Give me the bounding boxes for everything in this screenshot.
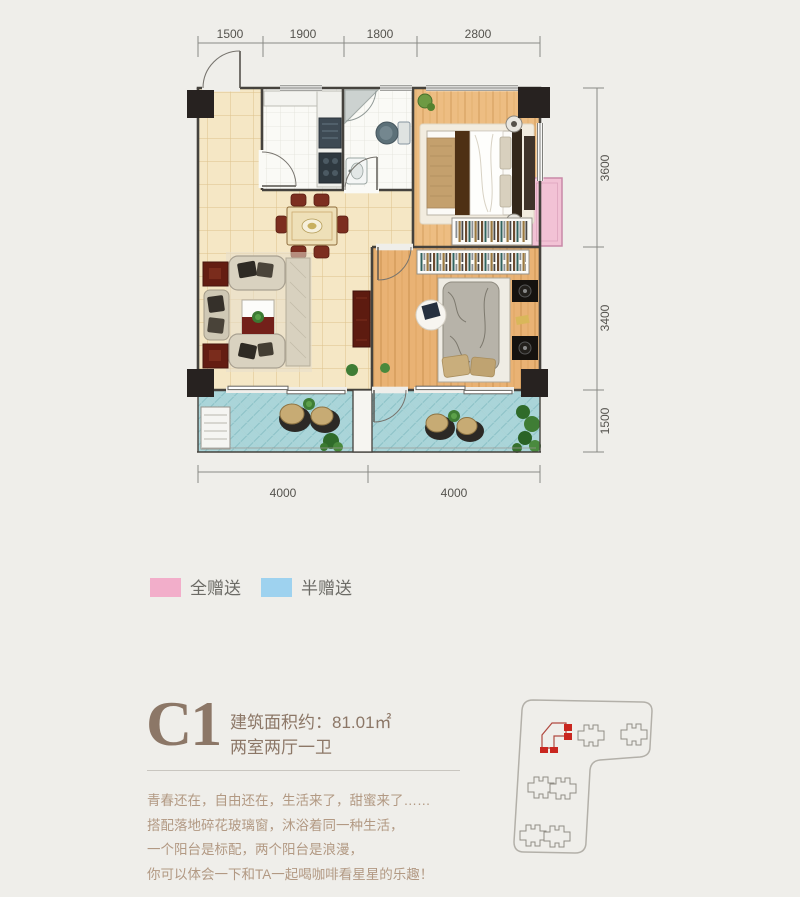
legend-swatch-full-gift: [150, 578, 181, 597]
building-outline: [621, 724, 647, 745]
tv-unit: [524, 136, 535, 210]
column: [187, 369, 214, 397]
dim-label: 4000: [441, 486, 468, 500]
building-outline: [578, 725, 604, 746]
desc-line: 一个阳台是标配，两个阳台是浪漫，: [147, 838, 507, 863]
unit-rooms: 两室两厅一卫: [230, 735, 476, 760]
dimension-labels-top: 1500 1900 1800 2800: [217, 27, 492, 41]
dimensions-right: [583, 88, 604, 452]
dimensions-bottom: [198, 465, 540, 483]
legend: 全赠送 半赠送: [150, 578, 352, 598]
window: [537, 123, 544, 181]
site-plan: [495, 690, 685, 870]
site-buildings: [520, 724, 647, 847]
dimension-labels-right: 3600 3400 1500: [598, 154, 612, 434]
highlighted-building: [540, 723, 572, 753]
column: [187, 90, 214, 118]
desc-line: 青春还在，自由还在，生活来了，甜蜜来了……: [147, 789, 507, 814]
legend-label-full-gift: 全赠送: [190, 579, 241, 598]
coffee-table: [242, 300, 274, 334]
unit-area: 建筑面积约：81.01㎡: [230, 710, 476, 735]
dim-label: 4000: [270, 486, 297, 500]
dim-label: 3600: [598, 154, 612, 181]
dim-label: 1900: [290, 27, 317, 41]
page: 1500 1900 1800 2800 3600 3400 1500 4000 …: [0, 0, 800, 897]
dim-label: 1500: [217, 27, 244, 41]
tv-cabinet: [353, 291, 370, 347]
double-bed: [438, 278, 510, 382]
dim-label: 3400: [598, 304, 612, 331]
bookshelf: [452, 218, 532, 245]
dim-label: 1500: [598, 407, 612, 434]
plant: [346, 364, 358, 376]
desc-line: 你可以体会一下和TA一起喝咖啡看星星的乐趣！: [147, 863, 507, 888]
floor-plan: 1500 1900 1800 2800 3600 3400 1500 4000 …: [0, 0, 800, 630]
column: [518, 87, 550, 118]
toilet: [376, 122, 410, 144]
marketing-description: 青春还在，自由还在，生活来了，甜蜜来了…… 搭配落地碎花玻璃窗，沐浴着同一种生活…: [147, 789, 507, 887]
dim-label: 2800: [465, 27, 492, 41]
window: [380, 85, 412, 91]
legend-swatch-half-gift: [261, 578, 292, 597]
sliding-door: [226, 386, 347, 394]
bathroom-sink: [346, 158, 367, 184]
unit-name: C1: [146, 692, 220, 756]
wardrobe: [417, 250, 529, 274]
sofa-set: [203, 252, 312, 372]
desc-line: 搭配落地碎花玻璃窗，沐浴着同一种生活，: [147, 814, 507, 839]
building-outline: [544, 826, 570, 847]
legend-label-half-gift: 半赠送: [301, 579, 352, 598]
bay-window-full-gift: [532, 178, 562, 246]
dim-label: 1800: [367, 27, 394, 41]
entry-door-arc: [203, 51, 240, 88]
double-bed: [427, 129, 522, 217]
dimension-labels-bottom: 4000 4000: [270, 486, 468, 500]
stove: [319, 153, 341, 183]
unit-info: C1 建筑面积约：81.01㎡ 两室两厅一卫: [146, 692, 476, 760]
window: [426, 85, 518, 91]
window: [280, 85, 322, 91]
building-outline: [520, 825, 546, 846]
washing-machine: [201, 407, 230, 449]
column: [521, 369, 548, 397]
plant: [380, 363, 390, 373]
divider: [147, 770, 460, 771]
building-outline: [550, 778, 576, 799]
fridge: [319, 118, 341, 148]
sliding-door: [414, 386, 514, 394]
hallway-floor: [372, 190, 413, 247]
